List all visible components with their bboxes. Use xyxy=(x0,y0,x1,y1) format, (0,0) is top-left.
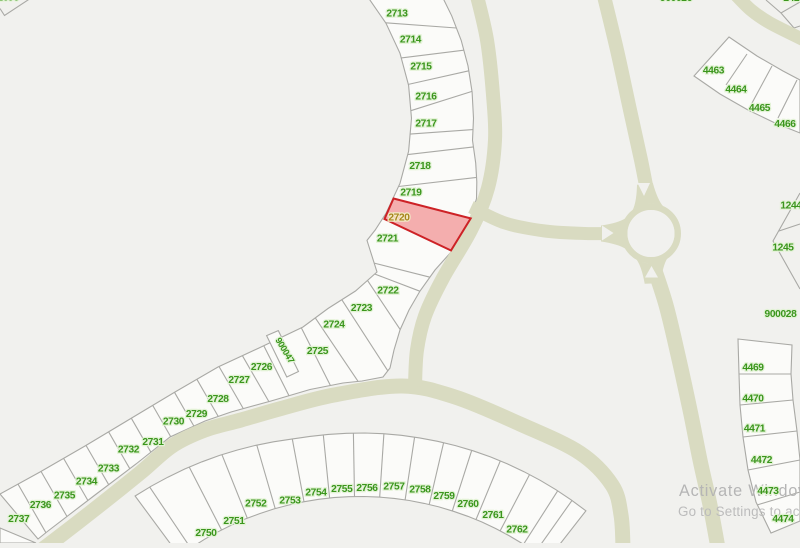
svg-text:2726: 2726 xyxy=(251,362,273,373)
svg-text:2420: 2420 xyxy=(783,0,800,4)
svg-text:2720: 2720 xyxy=(388,213,410,224)
svg-text:4470: 4470 xyxy=(742,394,764,405)
svg-text:1244: 1244 xyxy=(780,201,800,212)
svg-text:2721: 2721 xyxy=(377,234,399,245)
svg-text:2750: 2750 xyxy=(195,528,217,539)
svg-text:2734: 2734 xyxy=(76,477,98,488)
svg-text:1245: 1245 xyxy=(772,243,794,254)
svg-text:900028: 900028 xyxy=(765,309,798,320)
svg-text:2730: 2730 xyxy=(163,417,185,428)
svg-text:4466: 4466 xyxy=(774,119,796,130)
svg-text:2727: 2727 xyxy=(228,375,250,386)
svg-text:2724: 2724 xyxy=(323,320,345,331)
svg-text:2754: 2754 xyxy=(305,488,327,499)
svg-text:2696: 2696 xyxy=(0,0,19,4)
svg-text:4464: 4464 xyxy=(725,85,747,96)
svg-text:4465: 4465 xyxy=(749,103,771,114)
svg-text:4463: 4463 xyxy=(703,66,725,77)
svg-text:2718: 2718 xyxy=(409,161,431,172)
svg-text:2728: 2728 xyxy=(207,394,229,405)
svg-text:2737: 2737 xyxy=(8,514,30,525)
svg-text:2757: 2757 xyxy=(383,482,405,493)
svg-text:2756: 2756 xyxy=(356,483,378,494)
svg-text:2719: 2719 xyxy=(400,188,422,199)
svg-text:4474: 4474 xyxy=(772,514,794,525)
svg-text:2753: 2753 xyxy=(279,496,301,507)
svg-text:4473: 4473 xyxy=(757,486,779,497)
svg-text:2714: 2714 xyxy=(400,35,422,46)
svg-text:2761: 2761 xyxy=(482,510,504,521)
svg-text:2736: 2736 xyxy=(30,500,52,511)
svg-text:2732: 2732 xyxy=(118,445,140,456)
svg-text:2725: 2725 xyxy=(307,346,329,357)
svg-text:2715: 2715 xyxy=(410,62,432,73)
svg-text:2752: 2752 xyxy=(245,499,267,510)
svg-text:2735: 2735 xyxy=(54,491,76,502)
svg-text:2762: 2762 xyxy=(506,525,528,536)
svg-text:2713: 2713 xyxy=(386,9,408,20)
svg-text:4469: 4469 xyxy=(742,363,764,374)
svg-text:2722: 2722 xyxy=(377,286,399,297)
svg-text:2729: 2729 xyxy=(186,409,208,420)
svg-text:2755: 2755 xyxy=(331,484,353,495)
svg-text:4471: 4471 xyxy=(744,424,766,435)
svg-text:2733: 2733 xyxy=(98,464,120,475)
svg-text:4472: 4472 xyxy=(751,455,773,466)
svg-text:2759: 2759 xyxy=(433,491,455,502)
svg-text:Activate Windows: Activate Windows xyxy=(679,482,800,500)
svg-text:2751: 2751 xyxy=(223,516,245,527)
svg-text:2758: 2758 xyxy=(409,485,431,496)
svg-text:2731: 2731 xyxy=(142,437,164,448)
svg-text:2760: 2760 xyxy=(457,499,479,510)
svg-text:2723: 2723 xyxy=(351,303,373,314)
svg-text:2717: 2717 xyxy=(415,119,437,130)
svg-text:900026: 900026 xyxy=(660,0,693,4)
svg-text:2716: 2716 xyxy=(415,92,437,103)
